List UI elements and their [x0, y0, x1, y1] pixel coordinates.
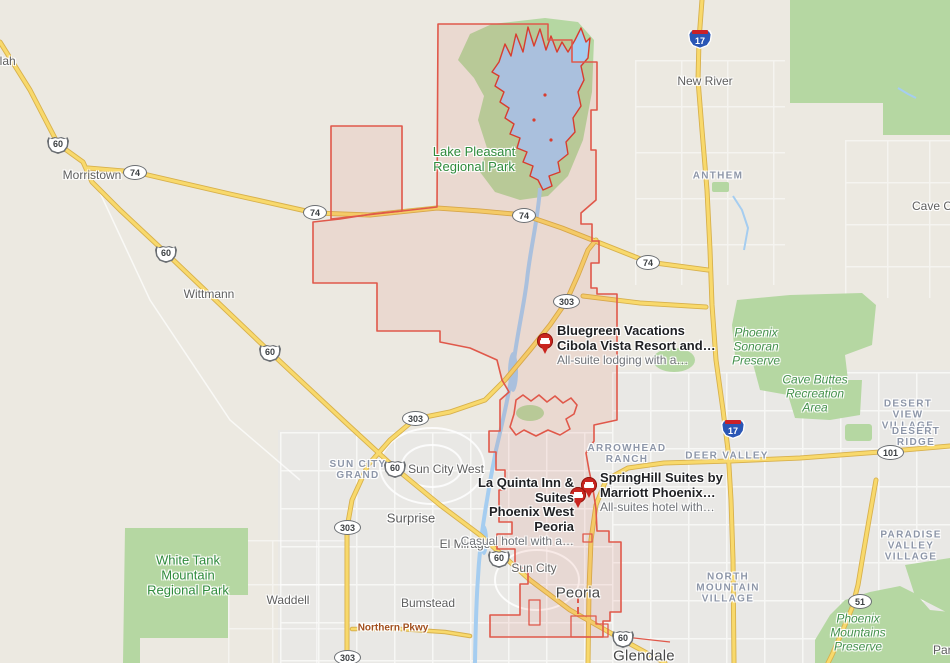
sr-74-shield: 74	[512, 208, 536, 223]
town-label-waddell[interactable]: Waddell	[267, 594, 310, 608]
us-60-shield: 60	[488, 548, 510, 568]
hotel-subtitle: All-suite lodging with a…	[557, 354, 716, 367]
park-label-lake-pleasant[interactable]: Lake Pleasant Regional Park	[433, 145, 515, 175]
us-60-shield: 60	[384, 458, 406, 478]
bed-icon	[584, 484, 594, 488]
neighborhood-label-desert-ridge: DESERT RIDGE	[892, 426, 940, 448]
sr-74-shield: 74	[303, 205, 327, 220]
sr-303-shield: 303	[334, 650, 361, 663]
hotel-title[interactable]: La Quinta Inn & Suites Phoenix West Peor…	[448, 476, 574, 534]
boundary-west-rectangle	[331, 126, 402, 219]
neighborhood-label-north-mountain-village: NORTH MOUNTAIN VILLAGE	[696, 572, 760, 605]
town-label-cave-creek[interactable]: Cave Cre	[912, 200, 950, 214]
town-label-sun-city[interactable]: Sun City	[511, 562, 556, 576]
desert-road	[95, 182, 300, 480]
city-label-peoria[interactable]: Peoria	[556, 584, 601, 601]
town-label-morristown[interactable]: Morristown	[63, 169, 122, 183]
town-label-surprise[interactable]: Surprise	[387, 512, 435, 527]
loop-101-shield: 101	[877, 445, 904, 460]
preserve-label-cave-buttes: Cave Buttes Recreation Area	[782, 373, 847, 414]
map-vector-layer	[0, 0, 950, 663]
tonto-green-northeast	[790, 0, 950, 135]
town-label-wittmann[interactable]: Wittmann	[184, 288, 235, 302]
hotel-title[interactable]: SpringHill Suites by Marriott Phoenix…	[600, 471, 723, 500]
sr-303-shield: 303	[402, 411, 429, 426]
neighborhood-label-sun-city-grand: SUN CITY GRAND	[329, 459, 386, 481]
sr-51-shield: 51	[848, 594, 872, 609]
us-60-shield: 60	[612, 628, 634, 648]
city-label-glendale[interactable]: Glendale	[613, 647, 675, 663]
neighborhood-label-paradise-valley-village: PARADISE VALLEY VILLAGE	[880, 530, 941, 563]
neighborhood-label-arrowhead-ranch: ARROWHEAD RANCH	[588, 443, 667, 465]
bed-icon	[540, 340, 550, 344]
cave-buttes-green	[845, 424, 872, 441]
hotel-subtitle: Casual hotel with a…	[448, 535, 574, 548]
hotel-card-la-quinta[interactable]: La Quinta Inn & Suites Phoenix West Peor…	[448, 476, 574, 549]
town-label-sun-city-west[interactable]: Sun City West	[408, 463, 484, 477]
hotel-card-bluegreen[interactable]: Bluegreen Vacations Cibola Vista Resort …	[557, 324, 716, 368]
hotel-pin-bluegreen[interactable]	[537, 333, 553, 349]
map-canvas[interactable]: 60 60 60 60 60 60 74 74 74 74 303 303 30…	[0, 0, 950, 663]
anthem-creek	[733, 196, 748, 250]
preserve-label-phoenix-mountains: Phoenix Mountains Preserve	[830, 612, 885, 653]
anthem-park-green	[712, 182, 729, 192]
i-17-shield: 17	[721, 418, 745, 439]
town-label-new-river[interactable]: New River	[677, 75, 732, 89]
i-17-shield: 17	[688, 28, 712, 49]
town-label-bumstead[interactable]: Bumstead	[401, 597, 455, 611]
road-label-northern-pkwy: Northern Pkwy	[358, 622, 429, 634]
preserve-label-phoenix-sonoran: Phoenix Sonoran Preserve	[732, 326, 780, 367]
hotel-subtitle: All-suites hotel with…	[600, 501, 723, 514]
bed-icon	[573, 494, 583, 498]
park-label-white-tank[interactable]: White Tank Mountain Regional Park	[147, 554, 229, 599]
hotel-card-springhill[interactable]: SpringHill Suites by Marriott Phoenix… A…	[600, 471, 723, 515]
sr-74-shield: 74	[123, 165, 147, 180]
sr-303-shield: 303	[553, 294, 580, 309]
us-60-shield: 60	[259, 342, 281, 362]
town-label-paradise-partial[interactable]: Para	[933, 644, 950, 658]
town-label-partial[interactable]: llah	[0, 55, 16, 69]
sr-74-shield: 74	[636, 255, 660, 270]
sr-303-shield: 303	[334, 520, 361, 535]
neighborhood-label-deer-valley: DEER VALLEY	[685, 451, 769, 462]
us-60-shield: 60	[47, 134, 69, 154]
us-60-shield: 60	[155, 243, 177, 263]
neighborhood-label-anthem: ANTHEM	[693, 171, 744, 182]
hotel-title[interactable]: Bluegreen Vacations Cibola Vista Resort …	[557, 324, 716, 353]
